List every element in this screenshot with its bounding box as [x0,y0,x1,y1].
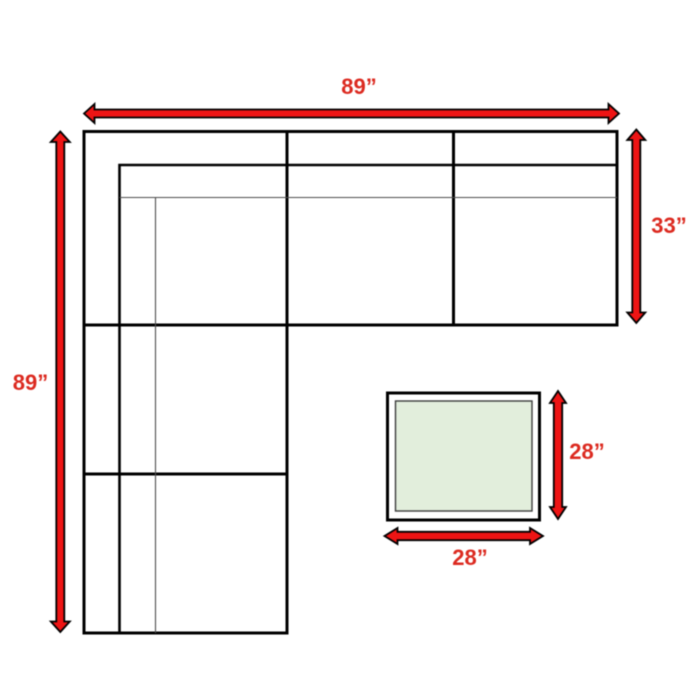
svg-text:33”: 33” [651,213,686,238]
svg-text:89”: 89” [341,74,376,99]
svg-text:28”: 28” [569,439,604,464]
svg-text:89”: 89” [13,370,48,395]
svg-text:28”: 28” [452,545,487,570]
